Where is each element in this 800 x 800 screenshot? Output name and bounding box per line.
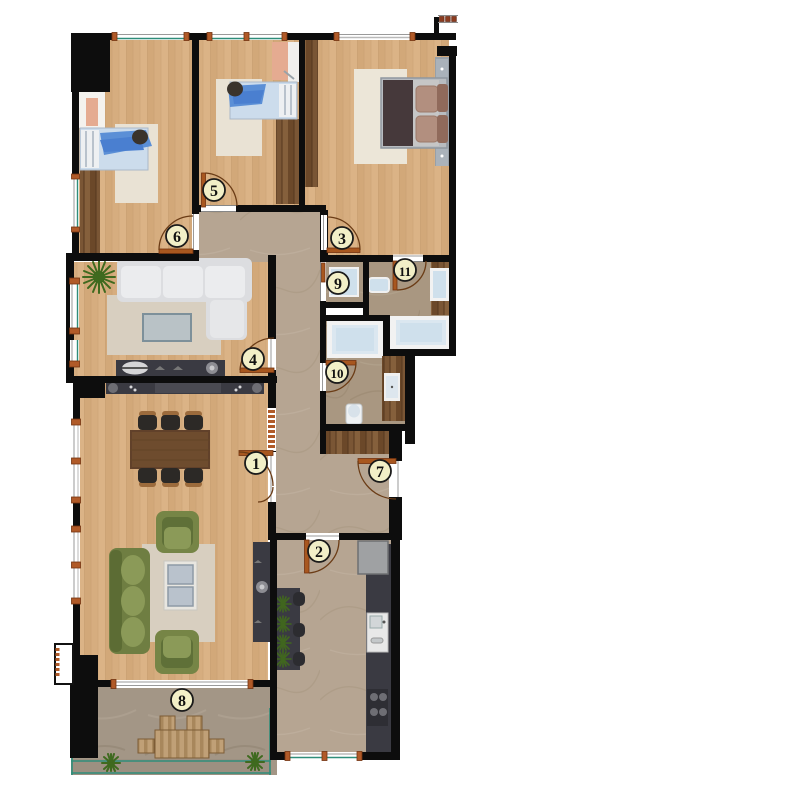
svg-text:6: 6 <box>173 229 181 246</box>
svg-text:11: 11 <box>399 264 411 279</box>
svg-text:10: 10 <box>331 366 344 381</box>
svg-text:4: 4 <box>249 352 257 369</box>
svg-text:1: 1 <box>252 456 260 473</box>
svg-text:3: 3 <box>338 231 346 248</box>
svg-text:2: 2 <box>315 544 323 561</box>
svg-text:9: 9 <box>334 276 342 293</box>
svg-text:5: 5 <box>210 183 218 200</box>
svg-text:7: 7 <box>376 464 384 481</box>
svg-text:8: 8 <box>178 693 186 710</box>
